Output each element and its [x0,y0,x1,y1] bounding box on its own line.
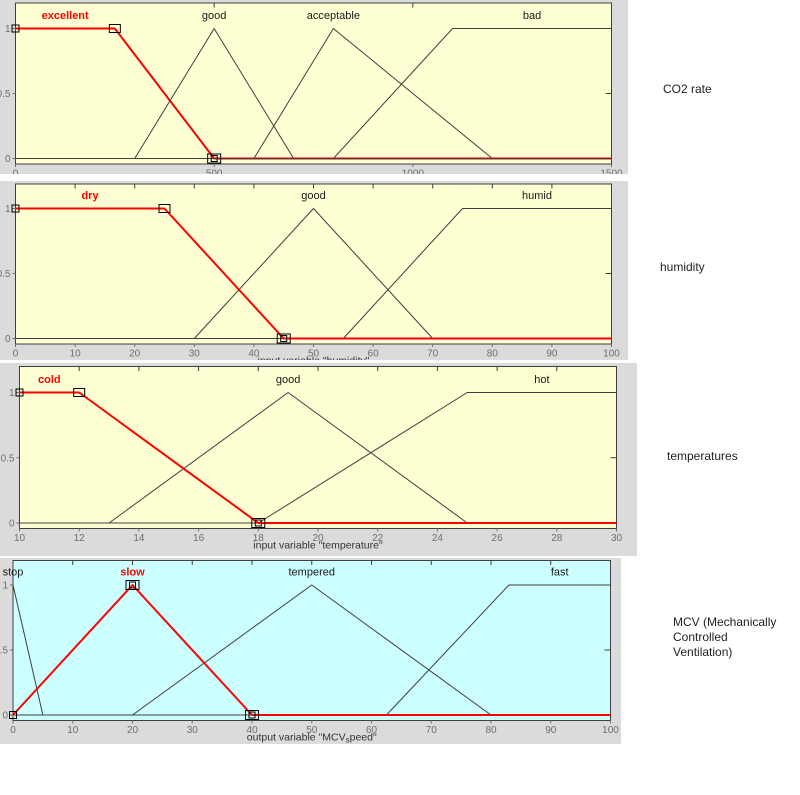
x-tick-label: 12 [74,533,86,544]
x-tick-label: 10 [67,725,79,736]
y-tick-label: 0 [5,154,11,165]
x-axis-label: input variable "temperature" [253,540,383,552]
axes-area-co2-rate[interactable] [16,3,612,164]
x-tick-label: 1500 [600,169,623,175]
x-tick-label: 80 [485,725,497,736]
caption-co2-rate: CO2 rate [663,82,712,97]
mf-label-fast: fast [551,567,569,579]
x-tick-label: 28 [551,533,563,544]
x-tick-label: 70 [427,349,439,360]
caption-mcv: MCV (Mechanically Controlled Ventilation… [673,615,783,660]
y-tick-label: 1 [9,388,15,399]
x-tick-label: 30 [611,533,623,544]
x-tick-label: 80 [487,349,499,360]
y-tick-label: 0.5 [1,453,15,464]
x-axis-label: input variable "humidity" [258,355,370,360]
x-tick-label: 14 [133,533,145,544]
y-tick-label: 0.5 [0,89,11,100]
y-tick-label: 0 [5,334,11,345]
x-tick-label: 1000 [402,169,425,175]
mf-label-humid: humid [522,190,552,202]
y-tick-label: 1 [5,204,11,215]
mf-label-tempered: tempered [289,567,335,579]
caption-humidity: humidity [660,260,705,275]
plot-co2-rate: 05001000150000.51excellentgoodacceptable… [0,0,628,174]
x-tick-label: 30 [187,725,199,736]
mf-label-hot: hot [534,374,549,386]
x-tick-label: 30 [189,349,201,360]
x-tick-label: 90 [546,349,558,360]
mf-label-good: good [202,10,226,22]
x-tick-label: 16 [193,533,205,544]
x-tick-label: 20 [127,725,139,736]
x-tick-label: 10 [14,533,26,544]
plot-panel-temperature: 101214161820222426283000.51coldgoodhotin… [0,363,637,556]
plot-temperature: 101214161820222426283000.51coldgoodhotin… [0,363,637,556]
mf-label-cold: cold [38,374,61,386]
y-tick-label: 0 [2,711,8,722]
x-tick-label: 100 [602,725,619,736]
mf-label-slow: slow [120,567,145,579]
x-tick-label: 0 [13,349,19,360]
mf-label-stop: stop [3,567,24,579]
x-tick-label: 0 [13,169,19,175]
x-tick-label: 70 [426,725,438,736]
axes-area-temperature[interactable] [20,367,617,529]
plot-humidity: 010203040506070809010000.51drygoodhumidi… [0,181,628,360]
plot-panel-mcv-speed: 010203040506070809010000.51stopslowtempe… [0,558,621,744]
x-tick-label: 100 [603,349,620,360]
plot-mcv-speed: 010203040506070809010000.51stopslowtempe… [0,558,621,744]
y-tick-label: 1 [5,24,11,35]
y-tick-label: 1 [2,581,8,592]
mf-label-dry: dry [81,190,99,202]
mf-label-good: good [276,374,300,386]
x-tick-label: 20 [129,349,141,360]
x-tick-label: 500 [206,169,223,175]
y-tick-label: 0.5 [0,269,11,280]
plot-panel-co2-rate: 05001000150000.51excellentgoodacceptable… [0,0,628,174]
x-tick-label: 24 [432,533,444,544]
y-tick-label: 0.5 [0,646,8,657]
plot-panel-humidity: 010203040506070809010000.51drygoodhumidi… [0,181,628,360]
x-tick-label: 10 [70,349,82,360]
x-tick-label: 0 [10,725,16,736]
x-tick-label: 90 [545,725,557,736]
x-axis-label: output variable "MCVspeed" [247,732,377,745]
y-tick-label: 0 [9,519,15,530]
x-tick-label: 26 [492,533,504,544]
mf-label-excellent: excellent [42,10,89,22]
mf-label-good: good [301,190,325,202]
caption-temperatures: temperatures [667,449,738,464]
mf-label-acceptable: acceptable [307,10,360,22]
membership-function-plots: 05001000150000.51excellentgoodacceptable… [0,0,800,795]
mf-label-bad: bad [523,10,541,22]
